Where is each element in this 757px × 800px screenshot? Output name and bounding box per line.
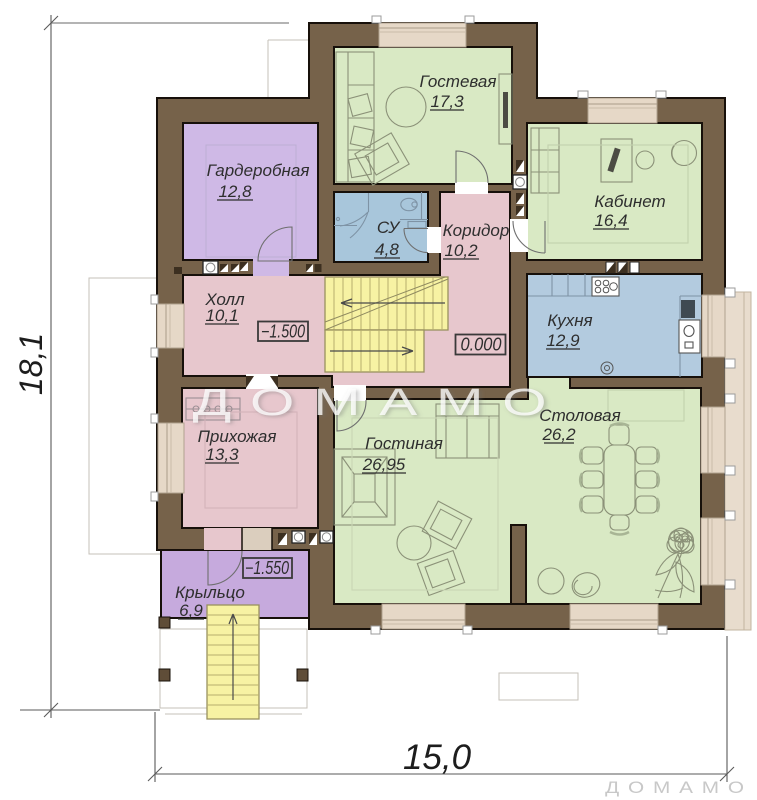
svg-text:ДОМАМО: ДОМАМО [605, 778, 753, 796]
svg-text:0.000: 0.000 [461, 335, 502, 355]
svg-text:12,8: 12,8 [218, 182, 252, 201]
svg-text:17,3: 17,3 [430, 92, 464, 111]
svg-text:13,3: 13,3 [205, 445, 239, 464]
svg-text:Гостиная: Гостиная [365, 434, 443, 453]
svg-text:4,8: 4,8 [375, 240, 399, 259]
svg-text:16,4: 16,4 [594, 211, 627, 230]
svg-text:СУ: СУ [377, 218, 401, 237]
svg-text:Прихожая: Прихожая [198, 427, 277, 446]
svg-text:Гардеробная: Гардеробная [207, 161, 310, 180]
svg-text:Крыльцо: Крыльцо [175, 583, 245, 602]
svg-text:6,9: 6,9 [179, 601, 203, 620]
svg-text:Кабинет: Кабинет [594, 192, 665, 211]
svg-text:Коридор: Коридор [443, 221, 510, 240]
svg-text:ДОМАМО: ДОМАМО [193, 381, 566, 423]
svg-text:15,0: 15,0 [403, 738, 472, 777]
svg-text:18,1: 18,1 [13, 333, 49, 395]
svg-text:−1.550: −1.550 [245, 558, 289, 578]
svg-text:Кухня: Кухня [547, 311, 592, 330]
svg-text:10,2: 10,2 [444, 241, 478, 260]
svg-text:−1.500: −1.500 [261, 322, 305, 342]
svg-text:26,2: 26,2 [541, 425, 576, 444]
svg-text:12,9: 12,9 [546, 331, 580, 350]
svg-text:26,95: 26,95 [362, 455, 406, 474]
svg-text:10,1: 10,1 [205, 306, 238, 325]
svg-text:Гостевая: Гостевая [420, 72, 497, 91]
